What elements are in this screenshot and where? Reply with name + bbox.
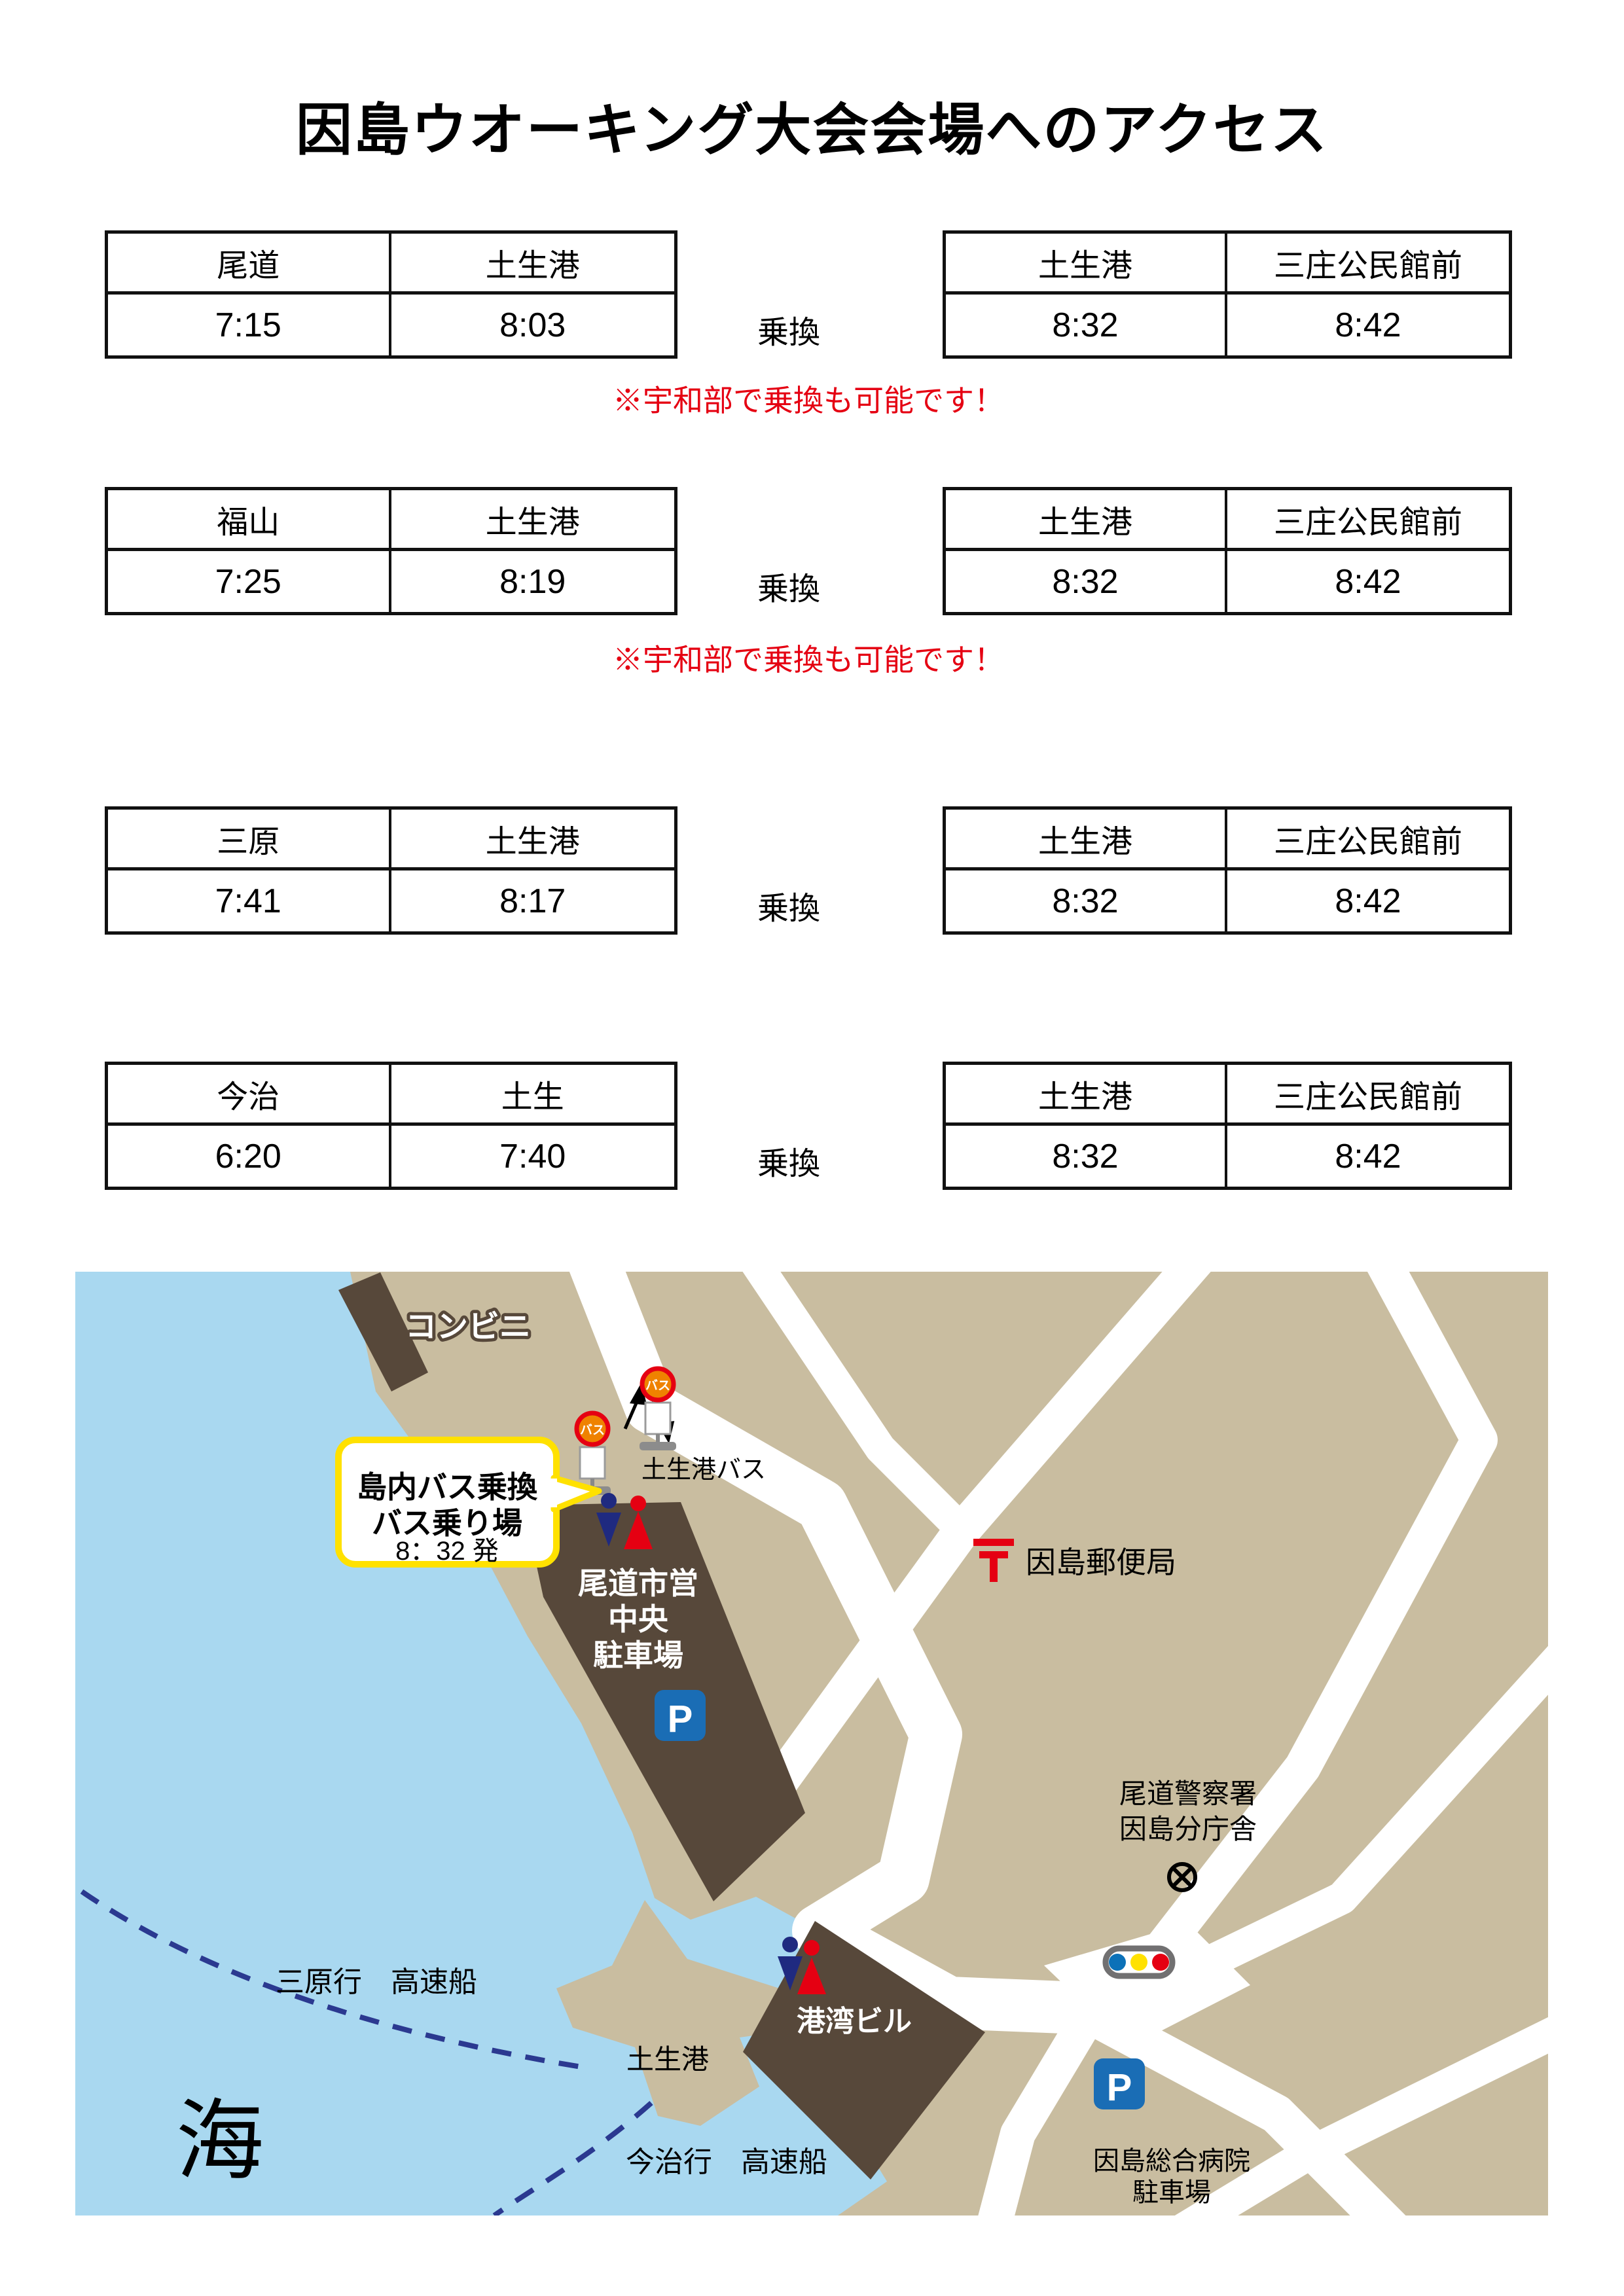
woman-icon — [630, 1496, 646, 1511]
access-flyer: 因島ウオーキング大会会場へのアクセス 尾道 土生港 7:15 8:03 乗換 土… — [0, 0, 1624, 2296]
station-to: 三庄公民館前 — [1227, 490, 1509, 551]
harbor-building-label: 港湾ビル — [797, 2005, 912, 2037]
traffic-signal-icon — [1106, 1948, 1172, 1976]
station-to: 三庄公民館前 — [1227, 810, 1509, 870]
hospital-label-1: 因島総合病院 — [1093, 2147, 1250, 2176]
man-icon — [782, 1937, 798, 1952]
post-office-label: 因島郵便局 — [1026, 1545, 1176, 1579]
station-from: 土生港 — [946, 810, 1227, 870]
depart-time: 7:41 — [108, 870, 391, 931]
timetable-onomichi: 尾道 土生港 7:15 8:03 — [105, 230, 677, 359]
station-from: 尾道 — [108, 234, 391, 295]
bus-stop-board — [645, 1403, 670, 1434]
police-label-1: 尾道警察署 — [1119, 1778, 1257, 1809]
bus-sign-label: バス — [580, 1423, 605, 1437]
habu-port-label: 土生港 — [626, 2044, 709, 2075]
bus-sign-label: バス — [645, 1378, 670, 1393]
imabari-route-label: 今治行 高速船 — [626, 2146, 827, 2178]
timetable-bus-3: 土生港 三庄公民館前 8:32 8:42 — [943, 806, 1512, 935]
central-parking-label-2: 中央 — [608, 1602, 669, 1636]
arrive-time: 8:42 — [1227, 870, 1509, 931]
station-to: 土生港 — [391, 810, 675, 870]
callout-line1: 島内バス乗換 — [357, 1470, 538, 1504]
woman-icon — [804, 1940, 820, 1956]
signal-yellow-light — [1130, 1954, 1147, 1971]
depart-time: 6:20 — [108, 1126, 391, 1187]
transfer-label: 乗換 — [736, 1138, 841, 1183]
transfer-note-2: ※宇和部で乗換も可能です！ — [0, 636, 1617, 679]
convenience-store-label: コンビニ — [405, 1310, 531, 1344]
parking-p-label: P — [668, 1698, 693, 1740]
callout-line3: 8：32 発 — [395, 1537, 499, 1566]
timetable-bus-4: 土生港 三庄公民館前 8:32 8:42 — [943, 1062, 1512, 1190]
parking-icon-central: P — [655, 1690, 706, 1741]
signal-red-light — [1152, 1954, 1169, 1971]
transfer-note-1: ※宇和部で乗換も可能です！ — [0, 377, 1617, 420]
station-to: 土生 — [391, 1065, 675, 1126]
station-to: 土生港 — [391, 490, 675, 551]
man-icon — [601, 1493, 617, 1509]
bus-stop-board — [580, 1447, 605, 1479]
callout-line2: バス乗り場 — [372, 1506, 522, 1540]
habu-port-bus-label: 土生港バス — [641, 1456, 766, 1484]
post-icon-stem — [990, 1558, 998, 1582]
arrive-time: 7:40 — [391, 1126, 675, 1187]
parking-p-label: P — [1107, 2066, 1132, 2109]
central-parking-label-1: 尾道市営 — [578, 1566, 698, 1600]
station-from: 福山 — [108, 490, 391, 551]
arrive-time: 8:17 — [391, 870, 675, 931]
central-parking-label-3: 駐車場 — [593, 1638, 683, 1672]
sea-label: 海 — [176, 2092, 264, 2191]
map-svg: バス バス 島内バス乗換 バス乗り場 8：32 発 コンビニ 土生 — [75, 1272, 1548, 2215]
arrive-time: 8:19 — [391, 551, 675, 612]
arrive-time: 8:03 — [391, 295, 675, 355]
bus-stop-pole — [656, 1434, 660, 1442]
station-from: 三原 — [108, 810, 391, 870]
bus-stop-pole — [590, 1479, 594, 1486]
hospital-label-2: 駐車場 — [1132, 2178, 1211, 2207]
station-from: 土生港 — [946, 234, 1227, 295]
access-map: バス バス 島内バス乗換 バス乗り場 8：32 発 コンビニ 土生 — [75, 1272, 1548, 2215]
arrive-time: 8:42 — [1227, 551, 1509, 612]
post-icon-bar2 — [979, 1551, 1008, 1558]
timetable-bus-1: 土生港 三庄公民館前 8:32 8:42 — [943, 230, 1512, 359]
timetable-bus-2: 土生港 三庄公民館前 8:32 8:42 — [943, 487, 1512, 615]
post-icon-bar1 — [973, 1539, 1014, 1546]
arrive-time: 8:42 — [1227, 1126, 1509, 1187]
page-title: 因島ウオーキング大会会場へのアクセス — [0, 84, 1624, 166]
police-label-2: 因島分庁舎 — [1119, 1814, 1257, 1844]
signal-blue-light — [1109, 1954, 1126, 1971]
bus-stop-base — [640, 1442, 676, 1450]
transfer-label: 乗換 — [736, 882, 841, 928]
station-to: 三庄公民館前 — [1227, 234, 1509, 295]
station-from: 今治 — [108, 1065, 391, 1126]
transfer-label: 乗換 — [736, 563, 841, 609]
transfer-label: 乗換 — [736, 306, 841, 352]
timetable-imabari: 今治 土生 6:20 7:40 — [105, 1062, 677, 1190]
arrive-time: 8:42 — [1227, 295, 1509, 355]
callout-tail-joint — [548, 1479, 557, 1507]
timetable-mihara: 三原 土生港 7:41 8:17 — [105, 806, 677, 935]
depart-time: 7:15 — [108, 295, 391, 355]
mihara-route-label: 三原行 高速船 — [276, 1966, 477, 1998]
station-from: 土生港 — [946, 1065, 1227, 1126]
depart-time: 8:32 — [946, 1126, 1227, 1187]
station-to: 三庄公民館前 — [1227, 1065, 1509, 1126]
depart-time: 8:32 — [946, 295, 1227, 355]
depart-time: 7:25 — [108, 551, 391, 612]
station-from: 土生港 — [946, 490, 1227, 551]
depart-time: 8:32 — [946, 551, 1227, 612]
timetable-fukuyama: 福山 土生港 7:25 8:19 — [105, 487, 677, 615]
depart-time: 8:32 — [946, 870, 1227, 931]
station-to: 土生港 — [391, 234, 675, 295]
